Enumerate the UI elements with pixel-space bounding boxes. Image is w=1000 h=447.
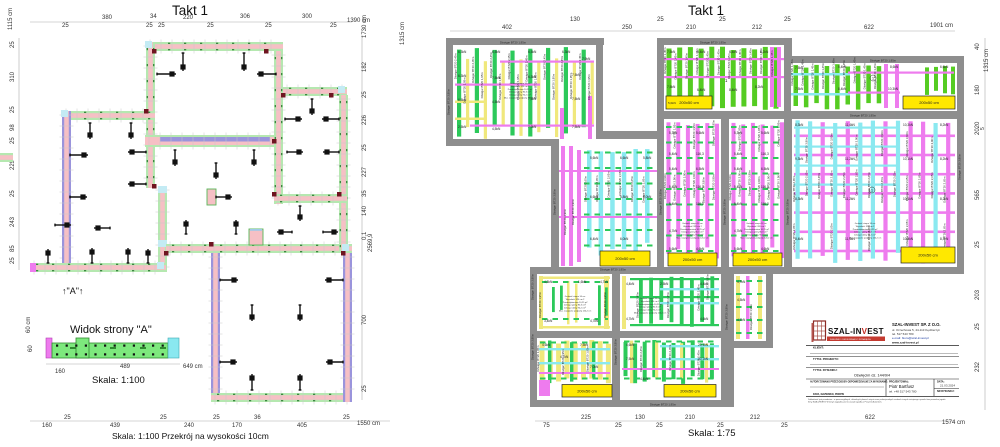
- svg-text:Dźwigar BT20 1,95m: Dźwigar BT20 1,95m: [498, 73, 502, 100]
- svg-text:60 cm: 60 cm: [26, 317, 32, 333]
- svg-text:Dźwigar BT20 2,65m: Dźwigar BT20 2,65m: [830, 170, 834, 197]
- svg-text:Skala: 1:100 Przekrój na wys: Skala: 1:100 Przekrój na wysokości 10cm: [112, 431, 269, 441]
- svg-text:5,6kN: 5,6kN: [590, 156, 599, 160]
- svg-text:Dźwigar BT20 2,65m: Dźwigar BT20 2,65m: [905, 219, 909, 246]
- svg-text:Dźwigar BT20 3,90m: Dźwigar BT20 3,90m: [682, 170, 686, 197]
- svg-text:Dźwigar BT20 1,95m: Dźwigar BT20 1,95m: [700, 41, 727, 45]
- svg-text:402: 402: [502, 25, 513, 31]
- svg-text:4,6kN: 4,6kN: [761, 247, 770, 251]
- svg-text:TYTUŁ RYSUNKU:: TYTUŁ RYSUNKU:: [813, 368, 838, 372]
- svg-text:Dźwigar BT20 3,90m: Dźwigar BT20 3,90m: [663, 173, 667, 200]
- svg-text:200x50 cm: 200x50 cm: [918, 253, 938, 258]
- svg-text:Dźwigar BT20 2,65m: Dźwigar BT20 2,65m: [943, 223, 947, 250]
- svg-text:Dźwigar BT20 2,65m: Dźwigar BT20 2,65m: [792, 223, 796, 250]
- svg-text:Dźwigar BT20 2,65m: Dźwigar BT20 2,65m: [905, 175, 909, 202]
- svg-text:Wysokość 320 cm 2: Wysokość 320 cm 2: [856, 226, 875, 228]
- svg-text:Dźwigar dolny 90,2 cm²: Dźwigar dolny 90,2 cm²: [854, 234, 876, 237]
- svg-text:4,4kN: 4,4kN: [626, 282, 635, 286]
- svg-text:34: 34: [150, 14, 157, 20]
- svg-text:7,5kN: 7,5kN: [572, 125, 581, 129]
- svg-text:180: 180: [975, 84, 981, 95]
- svg-text:116,3: 116,3: [761, 152, 769, 156]
- svg-text:Dźwigar BT20 1,95m: Dźwigar BT20 1,95m: [711, 119, 715, 146]
- svg-text:1,6kN: 1,6kN: [578, 280, 587, 284]
- svg-text:489: 489: [120, 364, 131, 370]
- svg-text:Dźwigar BT20 2,65m: Dźwigar BT20 2,65m: [892, 170, 896, 197]
- svg-text:Dźwigar BT20 1,95m: Dźwigar BT20 1,95m: [850, 114, 877, 118]
- svg-text:4,6kN: 4,6kN: [626, 343, 635, 347]
- svg-text:25: 25: [62, 23, 69, 29]
- svg-text:Dźwigar dolny 90,2 cm²: Dźwigar dolny 90,2 cm²: [564, 307, 586, 310]
- svg-text:6,3kN: 6,3kN: [562, 50, 571, 54]
- svg-text:Dźwigar BT20 3,90m: Dźwigar BT20 3,90m: [659, 188, 663, 215]
- svg-text:405: 405: [297, 423, 308, 429]
- svg-text:8,2kN: 8,2kN: [940, 123, 949, 127]
- svg-text:4,6kN: 4,6kN: [700, 317, 709, 321]
- svg-text:25: 25: [781, 423, 788, 429]
- svg-text:5,0kN: 5,0kN: [668, 101, 676, 105]
- svg-text:Takt 1: Takt 1: [688, 3, 724, 18]
- svg-text:21.03.2024: 21.03.2024: [940, 384, 955, 388]
- svg-text:Dźwigar BT20 2,65m: Dźwigar BT20 2,65m: [917, 172, 921, 199]
- svg-text:25: 25: [158, 23, 165, 29]
- svg-text:Max. rozpiętość podparty 120,2: Max. rozpiętość podparty 120,2 cm: [676, 237, 709, 240]
- svg-text:7,9kN: 7,9kN: [528, 125, 537, 129]
- svg-text:Dźwigar BT20 2,65m: Dźwigar BT20 2,65m: [930, 172, 934, 199]
- svg-text:Dźwigar BT20 3,90m: Dźwigar BT20 3,90m: [830, 133, 834, 160]
- svg-text:130: 130: [635, 415, 646, 421]
- svg-text:Dźwigar BT20 1,95m: Dźwigar BT20 1,95m: [516, 74, 520, 101]
- svg-text:200x50 cm: 200x50 cm: [679, 100, 699, 105]
- svg-text:25: 25: [362, 385, 368, 392]
- svg-text:1574 cm: 1574 cm: [942, 420, 965, 426]
- svg-text:SZALUNKI I OGRODZENIA DO WYNAJ: SZALUNKI I OGRODZENIA DO WYNAJĘCIA: [830, 338, 871, 341]
- svg-text:Grubość stropu 16 cm: Grubość stropu 16 cm: [855, 222, 876, 225]
- svg-text:Dźwigar BT20 1,45m: Dźwigar BT20 1,45m: [821, 62, 825, 89]
- svg-text:8,2kN: 8,2kN: [755, 85, 764, 89]
- svg-text:Dźwigar BT20 1,95m: Dźwigar BT20 1,95m: [650, 403, 677, 407]
- svg-text:5,4kN: 5,4kN: [734, 152, 743, 156]
- svg-text:25: 25: [160, 415, 167, 421]
- svg-text:4,5kN: 4,5kN: [737, 298, 746, 302]
- svg-text:Dźwigar BT20 1,95m: Dźwigar BT20 1,95m: [587, 73, 591, 100]
- svg-text:8,6kN: 8,6kN: [890, 65, 899, 69]
- svg-text:243: 243: [10, 216, 16, 227]
- svg-text:Dźwigar BT20 3,90m: Dźwigar BT20 3,90m: [757, 176, 761, 203]
- svg-text:Dźwigar BT20 1,45m: Dźwigar BT20 1,45m: [842, 59, 846, 86]
- svg-text:Dźwigar BT20 3,90m: Dźwigar BT20 3,90m: [673, 174, 677, 201]
- svg-text:25: 25: [615, 423, 622, 429]
- svg-text:212: 212: [752, 25, 763, 31]
- svg-text:Dźwigar BT20 3,90m: Dźwigar BT20 3,90m: [880, 129, 884, 156]
- svg-text:Wysokość 320 cm 2: Wysokość 320 cm 2: [747, 226, 766, 228]
- svg-text:Dźwigar BT20 3,90m: Dźwigar BT20 3,90m: [725, 303, 729, 330]
- svg-text:Przedsiębiorstwo 10,25 m²: Przedsiębiorstwo 10,25 m²: [853, 228, 878, 231]
- svg-text:75: 75: [543, 423, 550, 429]
- svg-text:Oświęcim dz. 144/9/4: Oświęcim dz. 144/9/4: [854, 374, 890, 378]
- svg-text:200x50 cm: 200x50 cm: [683, 257, 703, 262]
- svg-text:200x50 cm: 200x50 cm: [615, 256, 635, 261]
- svg-text:Dźwigar BT20 2,45m: Dźwigar BT20 2,45m: [635, 291, 639, 318]
- svg-text:firmy SZAL-INVEST. W innym wyp: firmy SZAL-INVEST. W innym wypadku jest …: [808, 401, 882, 404]
- svg-text:Dźwigar BT20 2,45m: Dźwigar BT20 2,45m: [697, 284, 701, 311]
- svg-text:622: 622: [864, 25, 875, 31]
- svg-text:Max. rozpiętość podparty 120,2: Max. rozpiętość podparty 120,2 cm: [559, 310, 592, 313]
- svg-text:Dźwigar BT20 3,90m: Dźwigar BT20 3,90m: [702, 176, 706, 203]
- svg-text:5,4kN: 5,4kN: [669, 152, 678, 156]
- svg-text:Dźwigar BT20 2,65m: Dźwigar BT20 2,65m: [641, 176, 645, 203]
- svg-text:2,5kN: 2,5kN: [660, 282, 669, 286]
- svg-text:6,5kN: 6,5kN: [492, 50, 501, 54]
- svg-text:Dźwigar BT20 3,90m: Dźwigar BT20 3,90m: [767, 173, 771, 200]
- svg-text:Dźwigar BT20 2,45m: Dźwigar BT20 2,45m: [489, 51, 493, 78]
- svg-text:5,4kN: 5,4kN: [734, 202, 743, 206]
- svg-text:SZAL-INVEST: SZAL-INVEST: [828, 327, 884, 336]
- svg-text:Dźwigar BT20 1,45m: Dźwigar BT20 1,45m: [863, 63, 867, 90]
- svg-text:Dźwigar górny 80,3 cm²: Dźwigar górny 80,3 cm²: [639, 306, 661, 309]
- svg-text:6,4kN: 6,4kN: [590, 237, 599, 241]
- svg-text:Dźwigar BT20 1,95m: Dźwigar BT20 1,95m: [480, 72, 484, 99]
- svg-text:6,5kN: 6,5kN: [528, 50, 537, 54]
- svg-text:Dźwigar BT20 2,45m: Dźwigar BT20 2,45m: [668, 344, 672, 371]
- svg-text:Dźwigar BT20 2,65m: Dźwigar BT20 2,65m: [943, 176, 947, 203]
- svg-text:7,0kN: 7,0kN: [590, 365, 599, 369]
- svg-text:tel. +48 517 543 780: tel. +48 517 543 780: [889, 390, 917, 394]
- svg-text:Dźwigar BT20 1,95m: Dźwigar BT20 1,95m: [462, 77, 466, 104]
- svg-text:25: 25: [330, 23, 337, 29]
- svg-text:200x50 cm: 200x50 cm: [919, 100, 939, 105]
- svg-text:Dźwigar dolny 90,2 cm²: Dźwigar dolny 90,2 cm²: [682, 234, 704, 237]
- svg-text:NR RYSUNKU:: NR RYSUNKU:: [937, 390, 955, 393]
- svg-text:1730 cm: 1730 cm: [362, 15, 368, 38]
- svg-text:Dźwigar BT20 1,95m: Dźwigar BT20 1,95m: [569, 72, 573, 99]
- svg-text:Dźwigar BT20 2,65m: Dźwigar BT20 2,65m: [842, 171, 846, 198]
- svg-text:310: 310: [10, 71, 16, 82]
- svg-text:649 cm: 649 cm: [183, 364, 203, 370]
- svg-text:Dokładność jest prawdziwa - w: Dokładność jest prawdziwa - w poszczegól…: [808, 398, 946, 401]
- svg-text:Dźwigar BT20 1,45m: Dźwigar BT20 1,45m: [738, 49, 742, 76]
- svg-text:Dźwigar górny 80,3 cm²: Dźwigar górny 80,3 cm²: [746, 231, 768, 234]
- svg-text:7,5kN: 7,5kN: [626, 357, 635, 361]
- svg-text:Dźwigar BT20 1,45m: Dźwigar BT20 1,45m: [852, 57, 856, 84]
- svg-text:6,0kN: 6,0kN: [620, 237, 629, 241]
- svg-text:Dźwigar BT20 2,65m: Dźwigar BT20 2,65m: [867, 224, 871, 251]
- svg-text:36: 36: [254, 415, 261, 421]
- svg-text:25: 25: [784, 17, 791, 23]
- svg-text:170: 170: [232, 423, 243, 429]
- svg-text:226: 226: [362, 114, 368, 125]
- svg-text:Dźwigar BT20 3,90m: Dźwigar BT20 3,90m: [855, 134, 859, 161]
- svg-text:Dźwigar BT20 1,45m: Dźwigar BT20 1,45m: [832, 57, 836, 84]
- svg-text:Dźwigar BT20 1,45m: Dźwigar BT20 1,45m: [770, 50, 774, 77]
- svg-text:7,5kN: 7,5kN: [795, 87, 804, 91]
- svg-text:4,7kN: 4,7kN: [737, 280, 746, 284]
- svg-text:10,3kN: 10,3kN: [888, 87, 899, 91]
- svg-text:Dźwigar BT20 1,95m: Dźwigar BT20 1,95m: [561, 348, 565, 375]
- svg-text:25: 25: [146, 23, 153, 29]
- svg-text:565: 565: [975, 189, 981, 200]
- svg-text:Dźwigar BT20 2,65m: Dźwigar BT20 2,65m: [855, 169, 859, 196]
- svg-text:1: 1: [872, 77, 874, 81]
- svg-text:116,3: 116,3: [696, 152, 704, 156]
- svg-text:Dźwigar BT20 2,65m: Dźwigar BT20 2,65m: [867, 171, 871, 198]
- svg-text:25: 25: [10, 106, 16, 113]
- svg-text:Dźwigar BT20 1,95m: Dźwigar BT20 1,95m: [738, 125, 742, 152]
- svg-text:Grubość stropu 16 cm: Grubość stropu 16 cm: [746, 222, 767, 225]
- svg-text:7,5kN: 7,5kN: [795, 66, 804, 70]
- svg-text:Dźwigar BT20 1,45m: Dźwigar BT20 1,45m: [684, 52, 688, 79]
- svg-text:25: 25: [10, 190, 16, 197]
- svg-text:Dźwigar BT20 3,90m: Dźwigar BT20 3,90m: [692, 171, 696, 198]
- svg-text:210: 210: [686, 25, 697, 31]
- svg-text:Dźwigar BT20 3,90m: Dźwigar BT20 3,90m: [614, 338, 618, 365]
- svg-text:Dźwigar BT20 3,90m: Dźwigar BT20 3,90m: [571, 198, 575, 225]
- svg-text:140: 140: [362, 205, 368, 216]
- svg-text:4,6kN: 4,6kN: [696, 247, 705, 251]
- svg-text:Dźwigar BT20 1,45m: Dźwigar BT20 1,45m: [663, 47, 667, 74]
- svg-text:11,4kN: 11,4kN: [845, 237, 856, 241]
- svg-text:25: 25: [343, 415, 350, 421]
- svg-text:Dźwigar BT20 1,95m: Dźwigar BT20 1,95m: [757, 125, 761, 152]
- svg-text:Dźwigar BT20 3,90m: Dźwigar BT20 3,90m: [563, 208, 567, 235]
- svg-text:8,4kN: 8,4kN: [729, 88, 738, 92]
- svg-text:25: 25: [362, 144, 368, 151]
- svg-text:Dźwigar BT20 2,65m: Dźwigar BT20 2,65m: [880, 176, 884, 203]
- svg-text:Dźwigar BT20 1,95m: Dźwigar BT20 1,95m: [551, 73, 555, 100]
- svg-text:Dźwigar BT20 2,65m: Dźwigar BT20 2,65m: [618, 169, 622, 196]
- svg-text:Skala: 1:75: Skala: 1:75: [688, 428, 736, 439]
- svg-text:5,8kN: 5,8kN: [643, 156, 652, 160]
- svg-text:200x50 cm: 200x50 cm: [748, 257, 768, 262]
- svg-text:6,4kN: 6,4kN: [697, 88, 706, 92]
- svg-text:Dźwigar BT20 1,95m: Dźwigar BT20 1,95m: [776, 120, 780, 147]
- svg-text:98: 98: [10, 124, 16, 131]
- svg-text:Dźwigar BT20 3,90m: Dźwigar BT20 3,90m: [905, 131, 909, 158]
- svg-text:5,4kN: 5,4kN: [734, 167, 743, 171]
- svg-text:439: 439: [110, 423, 121, 429]
- svg-text:130: 130: [570, 17, 581, 23]
- svg-text:Wysokość 320 cm 2: Wysokość 320 cm 2: [641, 301, 660, 303]
- svg-text:2,5kN: 2,5kN: [458, 125, 467, 129]
- svg-text:5,6kN: 5,6kN: [696, 131, 705, 135]
- svg-text:4,7kN: 4,7kN: [734, 229, 743, 233]
- svg-text:182: 182: [362, 61, 368, 72]
- svg-text:Dźwigar BT20 1,95m: Dźwigar BT20 1,95m: [673, 122, 677, 149]
- svg-text:4,6kN: 4,6kN: [542, 343, 551, 347]
- svg-text:Dźwigar dolny 90,2 cm²: Dźwigar dolny 90,2 cm²: [509, 94, 531, 97]
- svg-text:Dźwigar BT20 2,65m: Dźwigar BT20 2,65m: [607, 171, 611, 198]
- svg-text:Dźwigar BT20 3,90m: Dźwigar BT20 3,90m: [706, 273, 710, 300]
- svg-text:DATA, NAZWISKO, PODPIS: DATA, NAZWISKO, PODPIS: [813, 393, 844, 396]
- svg-text:Dźwigar BT20 1,45m: Dźwigar BT20 1,45m: [727, 53, 731, 80]
- svg-text:40: 40: [975, 43, 981, 50]
- svg-text:Dźwigar BT20 3,90m: Dźwigar BT20 3,90m: [738, 170, 742, 197]
- svg-text:306: 306: [240, 14, 251, 20]
- svg-text:Dźwigar BT20 3,90m: Dźwigar BT20 3,90m: [804, 136, 808, 163]
- svg-text:Dźwigar BT20 1,45m: Dźwigar BT20 1,45m: [706, 50, 710, 77]
- svg-text:Dźwigar BT20 1,45m: Dźwigar BT20 1,45m: [749, 47, 753, 74]
- svg-text:Dźwigar BT20 2,65m: Dźwigar BT20 2,65m: [804, 170, 808, 197]
- svg-text:232: 232: [975, 361, 981, 372]
- svg-text:Dźwigar BT20 1,95m: Dźwigar BT20 1,95m: [538, 291, 542, 318]
- svg-text:Dźwigar BT20 3,90m: Dźwigar BT20 3,90m: [711, 173, 715, 200]
- svg-text:Dźwigar BT20 2,45m: Dźwigar BT20 2,45m: [525, 55, 529, 82]
- svg-text:Dźwigar BT20 3,90m: Dźwigar BT20 3,90m: [776, 172, 780, 199]
- svg-text:Dźwigar BT20 1,95m: Dźwigar BT20 1,95m: [870, 59, 897, 63]
- svg-text:5,4kN: 5,4kN: [669, 167, 678, 171]
- svg-text:www.szal-invest.pl: www.szal-invest.pl: [891, 341, 919, 345]
- svg-text:Max. rozpiętość podparty 120,2: Max. rozpiętość podparty 120,2 cm: [504, 97, 537, 100]
- svg-text:AUTORYZOWANO PRZEZ/OSOBY ODPOW: AUTORYZOWANO PRZEZ/OSOBY ODPOWIEDZIALNE …: [810, 381, 888, 384]
- svg-text:Dźwigar BT20 1,95m: Dźwigar BT20 1,95m: [534, 72, 538, 99]
- svg-text:3,4kN: 3,4kN: [544, 319, 553, 323]
- svg-text:160: 160: [42, 423, 53, 429]
- svg-text:Dźwigar BT20 1,95m: Dźwigar BT20 1,95m: [692, 122, 696, 149]
- svg-text:Przedsiębiorstwo 10,25 m²: Przedsiębiorstwo 10,25 m²: [638, 303, 663, 306]
- svg-text:25: 25: [10, 137, 16, 144]
- svg-text:Dźwigar dolny 90,2 cm²: Dźwigar dolny 90,2 cm²: [639, 309, 661, 312]
- svg-text:212: 212: [750, 415, 761, 421]
- svg-text:Dźwigar BT20 3,90m: Dźwigar BT20 3,90m: [531, 333, 535, 360]
- svg-text:7,5kN: 7,5kN: [667, 85, 676, 89]
- svg-text:Dźwigar górny 80,3 cm²: Dźwigar górny 80,3 cm²: [854, 231, 876, 234]
- svg-text:5,6kN: 5,6kN: [761, 131, 770, 135]
- svg-text:35: 35: [362, 190, 368, 197]
- svg-text:5,4kN: 5,4kN: [669, 202, 678, 206]
- svg-text:Dźwigar BT20 1,95m: Dźwigar BT20 1,95m: [603, 291, 607, 318]
- svg-text:6,3kN: 6,3kN: [458, 50, 467, 54]
- svg-text:7,9kN: 7,9kN: [582, 57, 591, 61]
- svg-text:4,7kN: 4,7kN: [669, 229, 678, 233]
- svg-text:25: 25: [10, 257, 16, 264]
- svg-text:Dźwigar górny 80,3 cm²: Dźwigar górny 80,3 cm²: [509, 91, 531, 94]
- svg-text:7,5kN: 7,5kN: [572, 97, 581, 101]
- svg-text:Przedsiębiorstwo 10,25 m²: Przedsiębiorstwo 10,25 m²: [744, 228, 769, 231]
- svg-text:240: 240: [184, 423, 195, 429]
- svg-text:Grubość stropu 16 cm: Grubość stropu 16 cm: [682, 222, 703, 225]
- svg-text:700: 700: [362, 314, 368, 325]
- svg-text:Grubość stropu 16 cm: Grubość stropu 16 cm: [565, 295, 586, 298]
- svg-text:Piotr Bartfusz: Piotr Bartfusz: [889, 384, 914, 389]
- svg-text:8,3kN: 8,3kN: [795, 123, 804, 127]
- svg-text:Dźwigar BT20 2,65m: Dźwigar BT20 2,65m: [583, 175, 587, 202]
- svg-text:Dźwigar górny 80,3 cm²: Dźwigar górny 80,3 cm²: [564, 304, 586, 307]
- svg-text:160: 160: [55, 369, 66, 375]
- svg-text:225: 225: [581, 415, 592, 421]
- svg-text:85: 85: [10, 245, 16, 252]
- svg-text:Dźwigar BT20 2,45m: Dźwigar BT20 2,45m: [666, 291, 670, 318]
- svg-text:Dźwigar BT20 2,65m: Dźwigar BT20 2,65m: [830, 223, 834, 250]
- svg-text:Dźwigar BT20 2,45m: Dźwigar BT20 2,45m: [507, 53, 511, 80]
- svg-text:Dźwigar BT20 3,90m: Dźwigar BT20 3,90m: [553, 188, 557, 215]
- svg-text:Dźwigar BT20 1,95m: Dźwigar BT20 1,95m: [600, 268, 627, 272]
- svg-text:Dźwigar dolny 90,2 cm²: Dźwigar dolny 90,2 cm²: [746, 234, 768, 237]
- svg-text:Dźwigar BT20 2,45m: Dźwigar BT20 2,45m: [639, 345, 643, 372]
- svg-text:Dźwigar BT20 1,95m: Dźwigar BT20 1,95m: [500, 41, 527, 45]
- svg-text:25: 25: [719, 17, 726, 23]
- svg-text:25: 25: [975, 323, 981, 330]
- svg-text:Przedsiębiorstwo 10,25 m²: Przedsiębiorstwo 10,25 m²: [680, 228, 705, 231]
- svg-text:Wysokość 320 cm 2: Wysokość 320 cm 2: [511, 86, 530, 88]
- svg-text:622: 622: [865, 415, 876, 421]
- svg-text:Dźwigar BT20 1,45m: Dźwigar BT20 1,45m: [811, 63, 815, 90]
- svg-text:25: 25: [64, 415, 71, 421]
- svg-text:Dźwigar BT20 1,95m: Dźwigar BT20 1,95m: [586, 345, 590, 372]
- svg-text:Dźwigar BT20 3,90m: Dźwigar BT20 3,90m: [531, 273, 535, 300]
- svg-text:Dźwigar BT20 2,45m: Dźwigar BT20 2,45m: [542, 53, 546, 80]
- svg-text:11,2kN: 11,2kN: [845, 197, 856, 201]
- svg-text:Dźwigar BT20 3,90m: Dźwigar BT20 3,90m: [728, 174, 732, 201]
- svg-text:2569,9: 2569,9: [368, 233, 374, 252]
- svg-text:Dźwigar BT20 2,65m: Dźwigar BT20 2,65m: [792, 175, 796, 202]
- svg-text:203: 203: [975, 289, 981, 300]
- svg-text:25: 25: [656, 423, 663, 429]
- svg-text:Dźwigar BT20 3,90m: Dźwigar BT20 3,90m: [786, 198, 790, 225]
- svg-text:11,4kN: 11,4kN: [845, 123, 856, 127]
- svg-text:25: 25: [213, 415, 220, 421]
- svg-text:KLIENT:: KLIENT:: [813, 346, 824, 350]
- svg-text:Przedsiębiorstwo 10,25 m²: Przedsiębiorstwo 10,25 m²: [508, 88, 533, 91]
- svg-text:SZAL-INVEST SP. Z O.O.: SZAL-INVEST SP. Z O.O.: [892, 322, 941, 327]
- svg-text:Skala: 1:100: Skala: 1:100: [92, 375, 145, 386]
- svg-text:Dźwigar BT20 2,65m: Dźwigar BT20 2,65m: [595, 175, 599, 202]
- svg-text:8,4kN: 8,4kN: [838, 87, 847, 91]
- svg-text:6,5kN: 6,5kN: [696, 167, 705, 171]
- svg-text:4,7kN: 4,7kN: [600, 280, 609, 284]
- svg-text:Dźwigar BT20 3,90m: Dźwigar BT20 3,90m: [930, 136, 934, 163]
- svg-text:Dźwigar BT20 3,90m: Dźwigar BT20 3,90m: [747, 169, 751, 196]
- svg-text:Wysokość 320 cm 2: Wysokość 320 cm 2: [566, 299, 585, 301]
- svg-text:1315 cm: 1315 cm: [984, 49, 990, 72]
- svg-text:4,5kN: 4,5kN: [492, 127, 501, 131]
- svg-text:Wysokość 320 cm 2: Wysokość 320 cm 2: [683, 226, 702, 228]
- svg-text:Dźwigar BT20 1,45m: Dźwigar BT20 1,45m: [674, 53, 678, 80]
- svg-text:25: 25: [265, 23, 272, 29]
- svg-text:25: 25: [362, 91, 368, 98]
- svg-text:6,5kN: 6,5kN: [761, 167, 770, 171]
- svg-text:Dźwigar BT20 1,45m: Dźwigar BT20 1,45m: [790, 59, 794, 86]
- svg-text:Dźwigar górny 80,3 cm²: Dźwigar górny 80,3 cm²: [682, 231, 704, 234]
- svg-text:25: 25: [975, 241, 981, 248]
- svg-text:6,6kN: 6,6kN: [940, 65, 949, 69]
- svg-text:6,3kN: 6,3kN: [458, 74, 467, 78]
- svg-text:Dźwigar BT20 2,45m: Dźwigar BT20 2,45m: [697, 349, 701, 376]
- svg-text:227: 227: [362, 166, 368, 177]
- svg-text:1901 cm: 1901 cm: [930, 23, 953, 29]
- svg-text:Dźwigar BT20 2,45m: Dźwigar BT20 2,45m: [560, 55, 564, 82]
- svg-text:Dźwigar BT20 1,45m: Dźwigar BT20 1,45m: [695, 48, 699, 75]
- svg-text:25: 25: [657, 17, 664, 23]
- svg-text:25: 25: [10, 41, 16, 48]
- svg-text:Dźwigar BT20 2,45m: Dźwigar BT20 2,45m: [471, 56, 475, 83]
- svg-text:Dźwigar BT20 2,65m: Dźwigar BT20 2,65m: [630, 175, 634, 202]
- svg-text:4,5kN: 4,5kN: [544, 280, 553, 284]
- svg-text:Widok strony "A": Widok strony "A": [70, 324, 152, 336]
- svg-text:25: 25: [207, 23, 214, 29]
- svg-text:1315 cm: 1315 cm: [400, 22, 406, 45]
- svg-text:5,6kN: 5,6kN: [669, 247, 678, 251]
- svg-text:116,3: 116,3: [761, 202, 769, 206]
- svg-text:200x50 cm: 200x50 cm: [680, 388, 700, 393]
- svg-text:6,6kN: 6,6kN: [620, 156, 629, 160]
- svg-text:300: 300: [302, 14, 313, 20]
- svg-text:10,3kN: 10,3kN: [903, 123, 914, 127]
- svg-text:210: 210: [685, 415, 696, 421]
- svg-text:Dźwigar BT20 2,45m: Dźwigar BT20 2,45m: [578, 53, 582, 80]
- svg-text:20,1kN: 20,1kN: [698, 343, 709, 347]
- svg-text:8,2kN: 8,2kN: [940, 157, 949, 161]
- svg-text:5,4kN: 5,4kN: [838, 65, 847, 69]
